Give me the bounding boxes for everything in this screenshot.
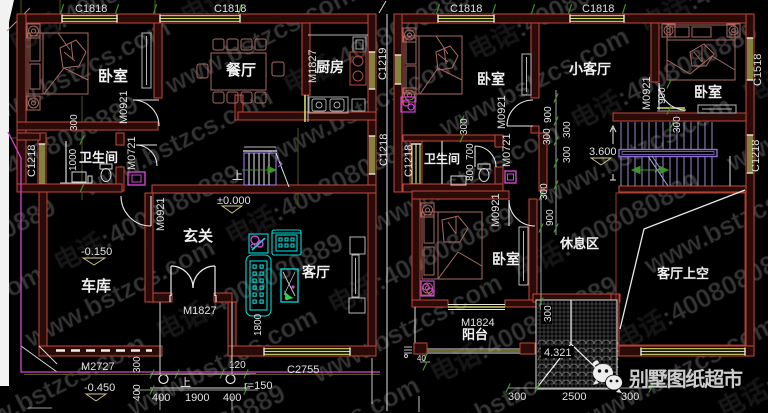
svg-text:C1218: C1218 [750, 140, 762, 172]
svg-text:300: 300 [621, 391, 639, 403]
svg-text:300: 300 [539, 183, 550, 200]
svg-text:300: 300 [542, 128, 553, 145]
svg-text:4.321: 4.321 [544, 347, 572, 359]
svg-text:-0.150: -0.150 [81, 246, 112, 258]
svg-text:300: 300 [543, 305, 554, 322]
svg-text:C1818: C1818 [214, 3, 246, 15]
svg-text:上: 上 [232, 169, 243, 182]
svg-text:卧室: 卧室 [694, 84, 722, 100]
svg-text:M1827: M1827 [183, 305, 217, 317]
svg-text:C1518: C1518 [752, 54, 764, 86]
svg-text:客厅: 客厅 [301, 264, 330, 280]
svg-text:C2755: C2755 [287, 364, 319, 376]
svg-text:M0921: M0921 [118, 90, 130, 124]
svg-text:700: 700 [465, 143, 476, 160]
svg-text:C1218: C1218 [403, 145, 415, 177]
svg-text:小客厅: 小客厅 [569, 61, 611, 77]
svg-text:120: 120 [229, 360, 246, 371]
svg-text:M0721: M0721 [501, 133, 513, 167]
svg-text:900: 900 [545, 209, 556, 226]
svg-text:300: 300 [672, 116, 683, 133]
svg-text:餐厅: 餐厅 [226, 61, 256, 79]
svg-text:M0921: M0921 [490, 193, 502, 227]
svg-text:卧室: 卧室 [492, 251, 520, 267]
svg-text:900: 900 [543, 106, 554, 123]
svg-text:1000: 1000 [68, 148, 79, 171]
svg-text:3.600: 3.600 [589, 146, 617, 158]
svg-text:M0921: M0921 [641, 76, 653, 110]
svg-text:1800: 1800 [253, 313, 264, 336]
svg-text:M0921: M0921 [155, 197, 167, 231]
svg-text:休息区: 休息区 [559, 236, 599, 251]
svg-text:300: 300 [69, 114, 80, 131]
svg-text:M1824: M1824 [461, 317, 495, 329]
svg-text:M2727: M2727 [81, 361, 115, 373]
svg-text:M0921: M0921 [496, 95, 508, 129]
svg-text:400: 400 [152, 392, 170, 404]
svg-text:300: 300 [562, 121, 573, 138]
svg-text:阳台: 阳台 [462, 327, 488, 342]
svg-text:车库: 车库 [81, 277, 111, 295]
svg-text:C1818: C1818 [582, 3, 614, 15]
svg-text:M1827: M1827 [307, 49, 319, 83]
svg-text:卫生间: 卫生间 [424, 151, 460, 166]
svg-text:C1218: C1218 [378, 134, 390, 166]
svg-text:玄关: 玄关 [183, 227, 213, 245]
svg-text:300: 300 [508, 391, 526, 403]
svg-text:卧室: 卧室 [477, 71, 505, 87]
svg-text:厨房: 厨房 [316, 59, 344, 75]
svg-text:800: 800 [465, 164, 476, 181]
svg-text:2500: 2500 [562, 391, 586, 403]
svg-text:M0721: M0721 [126, 136, 138, 170]
svg-text:400: 400 [223, 392, 241, 404]
svg-text:卫生间: 卫生间 [79, 150, 118, 165]
svg-text:-0.450: -0.450 [84, 382, 115, 394]
svg-text:客厅上空: 客厅上空 [657, 266, 709, 281]
svg-text:1900: 1900 [185, 392, 209, 404]
svg-text:400: 400 [132, 384, 143, 401]
svg-text:C1218: C1218 [26, 145, 38, 177]
svg-text:40: 40 [417, 354, 426, 363]
svg-text:300: 300 [132, 356, 143, 373]
svg-text:C1818: C1818 [75, 3, 107, 15]
svg-text:上: 上 [180, 376, 191, 389]
svg-text:C1818: C1818 [450, 3, 482, 15]
svg-text:900: 900 [657, 87, 668, 104]
svg-text:别墅图纸超市: 别墅图纸超市 [628, 367, 743, 391]
svg-text:r=150: r=150 [244, 380, 272, 392]
svg-text:卧室: 卧室 [98, 67, 128, 85]
svg-text:300: 300 [459, 118, 470, 135]
svg-text:±0.000: ±0.000 [217, 195, 251, 207]
svg-text:300: 300 [562, 146, 573, 163]
